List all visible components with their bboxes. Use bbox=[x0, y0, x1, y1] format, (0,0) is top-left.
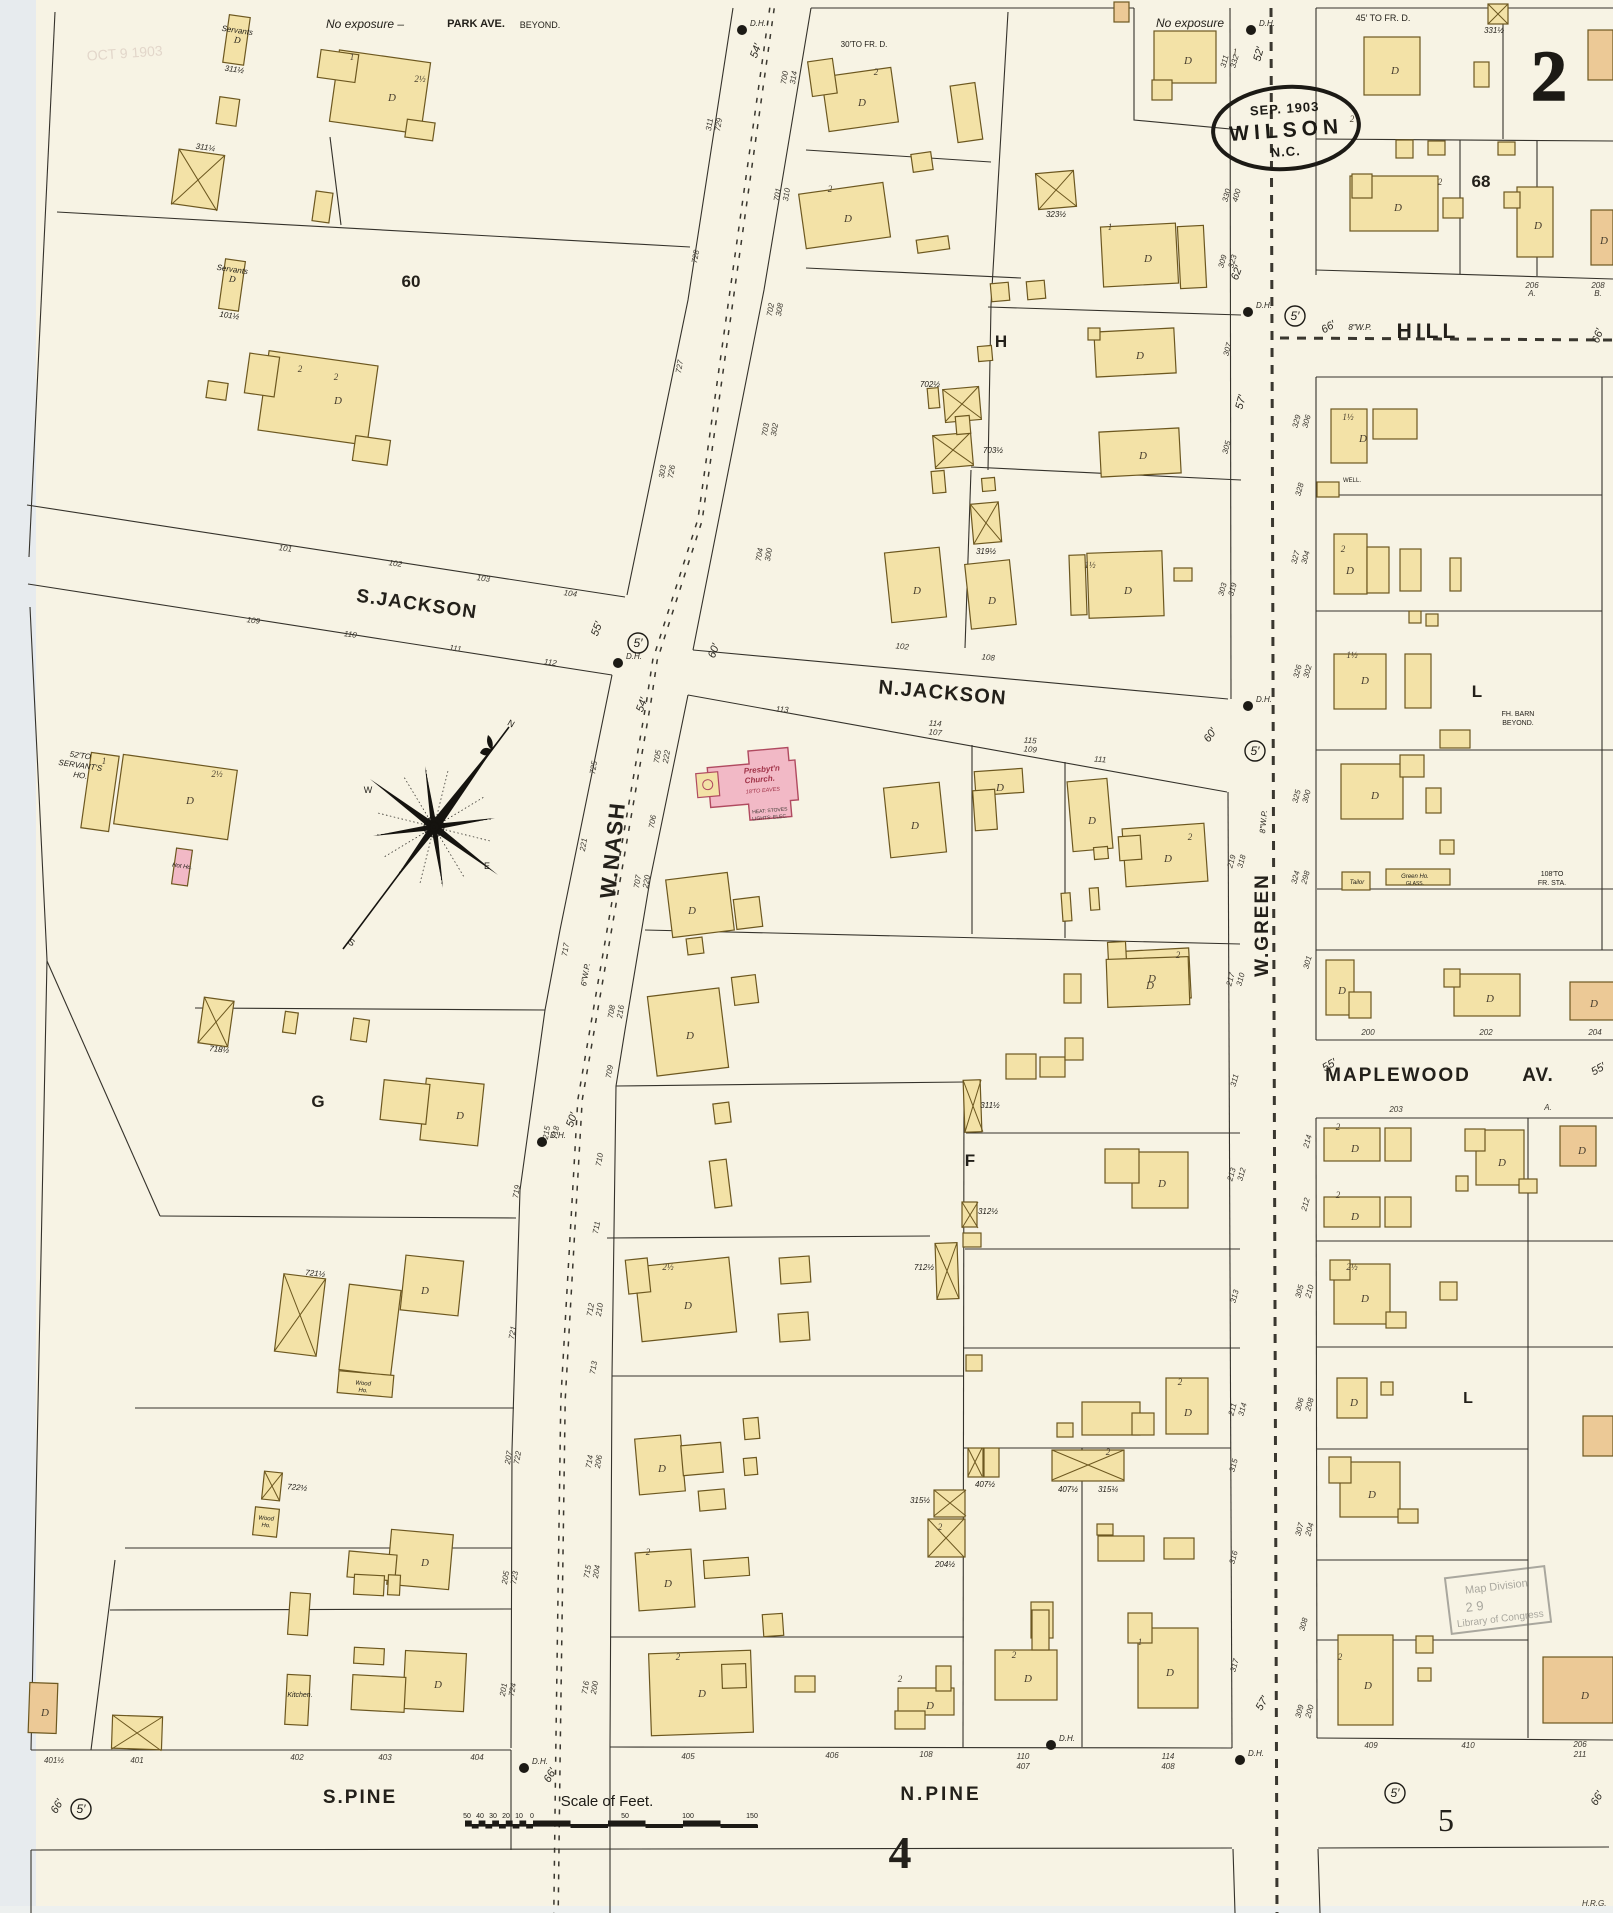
svg-text:312½: 312½ bbox=[978, 1207, 998, 1216]
svg-text:F: F bbox=[965, 1151, 975, 1170]
svg-text:5′: 5′ bbox=[1291, 309, 1301, 323]
svg-text:D: D bbox=[1349, 1397, 1358, 1409]
svg-text:D: D bbox=[683, 1300, 692, 1312]
svg-text:2: 2 bbox=[1176, 950, 1181, 960]
svg-text:712½: 712½ bbox=[914, 1263, 934, 1272]
svg-text:4: 4 bbox=[889, 1827, 912, 1878]
svg-text:D: D bbox=[1580, 1690, 1589, 1702]
svg-text:2: 2 bbox=[1106, 1447, 1111, 1457]
svg-text:D: D bbox=[1485, 993, 1494, 1005]
svg-text:D: D bbox=[1183, 1407, 1192, 1419]
svg-text:2: 2 bbox=[298, 364, 303, 374]
svg-text:311½: 311½ bbox=[980, 1101, 1000, 1110]
svg-text:113: 113 bbox=[775, 704, 789, 714]
svg-text:2: 2 bbox=[1350, 114, 1355, 124]
svg-text:204: 204 bbox=[1587, 1028, 1602, 1037]
svg-text:D: D bbox=[433, 1679, 442, 1691]
svg-text:D: D bbox=[1087, 815, 1096, 827]
svg-text:2: 2 bbox=[828, 184, 833, 194]
svg-text:B.: B. bbox=[1594, 289, 1602, 298]
svg-text:W: W bbox=[364, 785, 373, 795]
svg-text:2: 2 bbox=[1338, 1652, 1343, 1662]
svg-text:2: 2 bbox=[1178, 1377, 1183, 1387]
svg-text:409: 409 bbox=[1364, 1741, 1378, 1750]
svg-text:0: 0 bbox=[530, 1813, 534, 1820]
svg-text:2½: 2½ bbox=[1346, 1262, 1358, 1272]
svg-text:2½: 2½ bbox=[414, 74, 426, 84]
svg-text:2: 2 bbox=[334, 372, 339, 382]
svg-text:D: D bbox=[420, 1285, 429, 1297]
svg-text:407½: 407½ bbox=[1058, 1485, 1078, 1494]
svg-text:405: 405 bbox=[681, 1752, 695, 1761]
svg-text:45′ TO FR. D.: 45′ TO FR. D. bbox=[1356, 13, 1411, 23]
svg-text:D.H.: D.H. bbox=[750, 19, 766, 28]
svg-text:D.H.: D.H. bbox=[1256, 301, 1272, 310]
svg-text:Scale of Feet.: Scale of Feet. bbox=[561, 1793, 654, 1810]
svg-text:No exposure –: No exposure – bbox=[326, 17, 404, 31]
svg-text:5′: 5′ bbox=[1391, 1786, 1401, 1800]
svg-text:401½: 401½ bbox=[44, 1756, 64, 1765]
svg-text:401: 401 bbox=[130, 1756, 143, 1765]
svg-text:5′: 5′ bbox=[1251, 744, 1261, 758]
svg-text:2: 2 bbox=[676, 1652, 681, 1662]
svg-text:206: 206 bbox=[1572, 1740, 1587, 1749]
svg-text:MAPLEWOOD: MAPLEWOOD bbox=[1325, 1065, 1471, 1086]
svg-text:315½: 315½ bbox=[910, 1496, 930, 1505]
svg-text:1½: 1½ bbox=[1346, 650, 1358, 660]
svg-text:D: D bbox=[1589, 998, 1598, 1010]
svg-text:10: 10 bbox=[515, 1813, 523, 1820]
svg-text:1: 1 bbox=[1108, 222, 1113, 232]
svg-text:110: 110 bbox=[1017, 1752, 1030, 1761]
svg-text:D: D bbox=[1165, 1667, 1174, 1679]
svg-text:30: 30 bbox=[489, 1813, 497, 1820]
svg-text:D: D bbox=[1350, 1143, 1359, 1155]
svg-text:FR. STA.: FR. STA. bbox=[1538, 880, 1566, 887]
svg-text:2: 2 bbox=[1336, 1122, 1341, 1132]
svg-text:D: D bbox=[657, 1463, 666, 1475]
svg-text:104: 104 bbox=[563, 588, 578, 599]
svg-text:D.H.: D.H. bbox=[550, 1131, 566, 1140]
svg-text:402: 402 bbox=[290, 1753, 304, 1762]
svg-text:102: 102 bbox=[895, 641, 910, 651]
svg-text:D: D bbox=[1577, 1145, 1586, 1157]
svg-text:50: 50 bbox=[621, 1813, 629, 1820]
svg-text:WELL.: WELL. bbox=[1343, 478, 1361, 484]
svg-text:D: D bbox=[185, 795, 194, 807]
svg-text:204½: 204½ bbox=[934, 1560, 955, 1569]
svg-text:AV.: AV. bbox=[1522, 1065, 1554, 1086]
svg-text:D: D bbox=[1138, 450, 1147, 462]
svg-text:108: 108 bbox=[981, 652, 996, 662]
svg-text:406: 406 bbox=[825, 1751, 839, 1760]
svg-text:D: D bbox=[1023, 1673, 1032, 1685]
svg-text:Ho.: Ho. bbox=[261, 1523, 271, 1530]
svg-text:8″W.P.: 8″W.P. bbox=[1348, 323, 1371, 332]
svg-text:D: D bbox=[1145, 980, 1154, 992]
svg-text:5′: 5′ bbox=[77, 1802, 87, 1816]
svg-text:N.C.: N.C. bbox=[1270, 143, 1301, 160]
svg-text:D: D bbox=[1143, 253, 1152, 265]
svg-text:404: 404 bbox=[470, 1753, 484, 1762]
svg-text:2: 2 bbox=[1341, 544, 1346, 554]
svg-text:D: D bbox=[1393, 202, 1402, 214]
svg-text:2½: 2½ bbox=[211, 769, 223, 779]
svg-text:2: 2 bbox=[898, 1674, 903, 1684]
svg-text:BEYOND.: BEYOND. bbox=[520, 20, 561, 30]
svg-text:D: D bbox=[1157, 1178, 1166, 1190]
svg-text:H: H bbox=[995, 332, 1007, 351]
svg-text:109: 109 bbox=[1023, 744, 1038, 754]
svg-text:L: L bbox=[1472, 682, 1482, 701]
svg-text:D: D bbox=[925, 1700, 934, 1712]
svg-text:2: 2 bbox=[1012, 1650, 1017, 1660]
svg-text:2½: 2½ bbox=[662, 1262, 674, 1272]
svg-text:1: 1 bbox=[1138, 1637, 1143, 1647]
svg-text:110: 110 bbox=[343, 629, 357, 640]
svg-text:S.PINE: S.PINE bbox=[323, 1787, 397, 1808]
svg-text:D.H.: D.H. bbox=[1059, 1734, 1075, 1743]
svg-text:D: D bbox=[1367, 1489, 1376, 1501]
svg-text:D: D bbox=[40, 1707, 49, 1719]
svg-text:323½: 323½ bbox=[1046, 210, 1066, 219]
svg-text:D.H.: D.H. bbox=[1248, 1749, 1264, 1758]
svg-text:E: E bbox=[484, 861, 490, 871]
svg-text:A.: A. bbox=[1527, 289, 1536, 298]
svg-text:D: D bbox=[1123, 585, 1132, 597]
svg-text:D: D bbox=[1350, 1211, 1359, 1223]
svg-text:2: 2 bbox=[1438, 177, 1443, 187]
svg-text:1½: 1½ bbox=[1084, 560, 1096, 570]
svg-text:200: 200 bbox=[1360, 1028, 1375, 1037]
svg-text:D.H.: D.H. bbox=[1259, 19, 1275, 28]
svg-text:D: D bbox=[857, 97, 866, 109]
svg-text:103: 103 bbox=[476, 573, 491, 584]
svg-text:108: 108 bbox=[919, 1750, 933, 1759]
svg-text:GLASS.: GLASS. bbox=[1406, 881, 1424, 887]
svg-text:D: D bbox=[1363, 1680, 1372, 1692]
svg-text:101: 101 bbox=[278, 543, 292, 554]
svg-text:102: 102 bbox=[388, 558, 403, 569]
svg-text:702½: 702½ bbox=[920, 380, 940, 389]
svg-text:30′TO FR. D.: 30′TO FR. D. bbox=[841, 40, 888, 49]
svg-text:Green Ho.: Green Ho. bbox=[1401, 874, 1429, 880]
svg-text:D.H.: D.H. bbox=[1256, 695, 1272, 704]
svg-text:G: G bbox=[311, 1092, 324, 1111]
svg-text:D: D bbox=[387, 92, 396, 104]
svg-text:410: 410 bbox=[1461, 1741, 1475, 1750]
svg-text:109: 109 bbox=[246, 615, 261, 626]
svg-text:203: 203 bbox=[1388, 1105, 1403, 1114]
svg-text:111: 111 bbox=[449, 643, 462, 654]
svg-text:D: D bbox=[987, 595, 996, 607]
svg-text:111: 111 bbox=[1094, 754, 1107, 764]
svg-text:D.H.: D.H. bbox=[532, 1757, 548, 1766]
svg-text:50: 50 bbox=[463, 1813, 471, 1820]
svg-text:D: D bbox=[1370, 790, 1379, 802]
svg-text:5′: 5′ bbox=[634, 636, 644, 650]
svg-text:703½: 703½ bbox=[983, 446, 1003, 455]
svg-text:D: D bbox=[912, 585, 921, 597]
svg-text:2: 2 bbox=[874, 67, 879, 77]
svg-text:D: D bbox=[1360, 675, 1369, 687]
svg-text:202: 202 bbox=[1478, 1028, 1493, 1037]
svg-text:407½: 407½ bbox=[975, 1480, 995, 1489]
svg-text:403: 403 bbox=[378, 1753, 392, 1762]
svg-text:408: 408 bbox=[1161, 1762, 1175, 1771]
svg-text:D: D bbox=[910, 820, 919, 832]
svg-text:107: 107 bbox=[928, 727, 943, 737]
svg-text:D: D bbox=[663, 1578, 672, 1590]
svg-text:D: D bbox=[1533, 220, 1542, 232]
svg-text:HILL: HILL bbox=[1397, 320, 1460, 343]
svg-text:H.R.G.: H.R.G. bbox=[1582, 1899, 1606, 1908]
svg-text:1½: 1½ bbox=[1342, 412, 1354, 422]
svg-text:D: D bbox=[1358, 433, 1367, 445]
svg-text:D: D bbox=[1135, 350, 1144, 362]
svg-text:D: D bbox=[1183, 55, 1192, 67]
svg-text:D: D bbox=[333, 395, 342, 407]
svg-text:Ho.: Ho. bbox=[358, 1388, 368, 1395]
svg-text:2: 2 bbox=[1188, 832, 1193, 842]
svg-text:D: D bbox=[685, 1030, 694, 1042]
svg-text:FH. BARN: FH. BARN bbox=[1502, 711, 1535, 718]
svg-text:D: D bbox=[1497, 1157, 1506, 1169]
svg-text:40: 40 bbox=[476, 1813, 484, 1820]
svg-text:L: L bbox=[1463, 1390, 1473, 1407]
svg-text:211: 211 bbox=[1573, 1750, 1587, 1759]
svg-text:1: 1 bbox=[350, 52, 355, 62]
svg-text:20: 20 bbox=[502, 1813, 510, 1820]
svg-text:Tailor: Tailor bbox=[1350, 880, 1365, 886]
svg-text:No exposure: No exposure bbox=[1156, 16, 1224, 30]
svg-text:N.PINE: N.PINE bbox=[900, 1784, 981, 1805]
svg-text:D: D bbox=[1599, 235, 1608, 247]
svg-text:114: 114 bbox=[1162, 1752, 1175, 1761]
svg-text:60: 60 bbox=[402, 272, 421, 291]
svg-text:D: D bbox=[687, 905, 696, 917]
svg-text:1: 1 bbox=[102, 756, 107, 766]
svg-text:108′TO: 108′TO bbox=[1541, 871, 1564, 878]
svg-text:D: D bbox=[1360, 1293, 1369, 1305]
svg-text:PARK AVE.: PARK AVE. bbox=[447, 18, 505, 30]
svg-text:D: D bbox=[1337, 985, 1346, 997]
svg-text:2 9: 2 9 bbox=[1465, 1598, 1485, 1615]
svg-text:BEYOND.: BEYOND. bbox=[1502, 720, 1534, 727]
svg-text:2: 2 bbox=[1531, 36, 1567, 116]
svg-text:D: D bbox=[1345, 565, 1354, 577]
svg-text:315¼: 315¼ bbox=[1098, 1485, 1118, 1494]
svg-text:Kitchen.: Kitchen. bbox=[287, 1692, 312, 1699]
svg-text:100: 100 bbox=[682, 1813, 694, 1820]
svg-text:2: 2 bbox=[1336, 1190, 1341, 1200]
svg-text:319½: 319½ bbox=[976, 547, 996, 556]
svg-text:5: 5 bbox=[1438, 1802, 1454, 1838]
svg-text:2: 2 bbox=[938, 1522, 943, 1532]
svg-text:A.: A. bbox=[1543, 1103, 1552, 1112]
svg-text:D: D bbox=[420, 1557, 429, 1569]
svg-text:112: 112 bbox=[543, 657, 557, 668]
svg-text:331½: 331½ bbox=[1484, 26, 1504, 35]
svg-text:2: 2 bbox=[646, 1547, 651, 1557]
svg-text:68: 68 bbox=[1472, 172, 1491, 191]
svg-text:W.GREEN: W.GREEN bbox=[1252, 873, 1273, 977]
svg-text:150: 150 bbox=[746, 1813, 758, 1820]
svg-text:D: D bbox=[455, 1110, 464, 1122]
svg-text:D: D bbox=[1163, 853, 1172, 865]
svg-text:D: D bbox=[995, 782, 1004, 794]
svg-text:722½: 722½ bbox=[287, 1482, 308, 1493]
svg-text:D: D bbox=[697, 1688, 706, 1700]
svg-text:D: D bbox=[1390, 65, 1399, 77]
svg-text:D: D bbox=[843, 213, 852, 225]
svg-text:407: 407 bbox=[1016, 1762, 1030, 1771]
